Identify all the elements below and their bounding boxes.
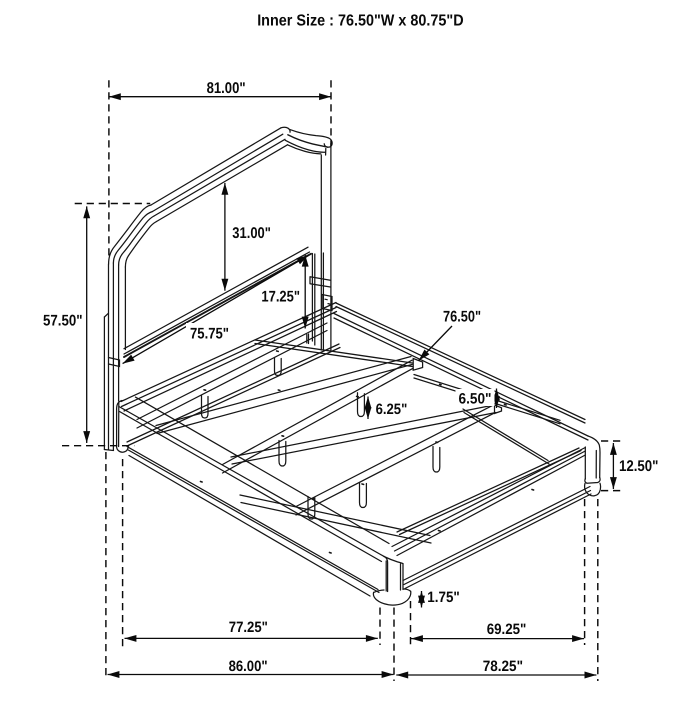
svg-text:81.00": 81.00" — [207, 80, 246, 97]
svg-text:76.50": 76.50" — [443, 309, 481, 326]
svg-text:75.75": 75.75" — [190, 326, 229, 343]
svg-text:86.00": 86.00" — [229, 658, 268, 675]
svg-text:31.00": 31.00" — [232, 225, 271, 242]
svg-text:69.25": 69.25" — [487, 621, 527, 638]
svg-text:17.25": 17.25" — [261, 288, 300, 305]
svg-text:78.25": 78.25" — [483, 658, 523, 675]
svg-text:Inner Size : 76.50"W x 80.75"D: Inner Size : 76.50"W x 80.75"D — [257, 12, 463, 29]
svg-text:12.50": 12.50" — [619, 458, 658, 475]
svg-text:57.50": 57.50" — [43, 313, 83, 330]
svg-text:6.50": 6.50" — [459, 391, 492, 408]
svg-text:6.25": 6.25" — [376, 401, 408, 418]
svg-text:1.75": 1.75" — [427, 589, 460, 606]
svg-text:77.25": 77.25" — [229, 619, 268, 636]
